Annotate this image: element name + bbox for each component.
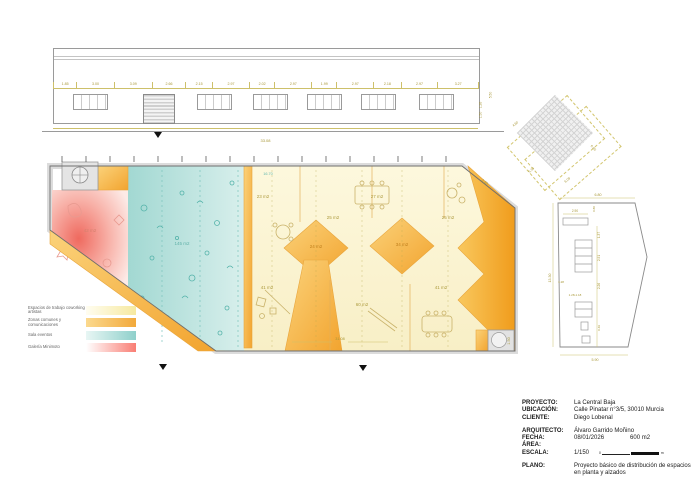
dimension-label: 13.30: [548, 274, 552, 283]
room-label: 24 m2: [310, 244, 323, 249]
side-elevation-drawing: 6.80 13.30 5.90 2.90 0.80 1.37 2.91 2.26…: [545, 190, 655, 370]
legend-label: Zonas comunes y comunicaciones: [28, 318, 86, 327]
parapet-line: [54, 56, 479, 57]
scale-value: 1/150: [574, 450, 589, 457]
dim-segment: 2.15: [185, 82, 212, 88]
dim-segment: 2.97: [336, 82, 373, 88]
dim-segment: 2.97: [274, 82, 311, 88]
dim-segment: 1.85: [53, 82, 76, 88]
dimension-label: 2.26: [597, 283, 601, 289]
legend-item: Sala eventos: [28, 329, 158, 342]
room-label: 42 m2: [84, 228, 97, 233]
roller-door: [143, 94, 175, 124]
title-block: PROYECTO: La Central Baja UBICACIÓN: Cal…: [522, 400, 698, 477]
vertical-dimension: 1.26: [478, 102, 482, 109]
roof-plan-drawing: 4.60 5.33 6.09 6.80: [506, 92, 618, 192]
date-value: 08/01/2026 600 m2: [574, 435, 698, 442]
room-label: 60 m2: [356, 302, 369, 307]
vertical-dimension: 5.50: [488, 92, 492, 99]
titleblock-row-area: ÁREA:: [522, 442, 698, 449]
overall-dimension: 33.08: [53, 128, 478, 147]
front-elevation-drawing: 1.85 3.00 3.09 2.66 2.15 2.97 2.02 2.97 …: [40, 45, 510, 145]
legend-item: Espacios de trabajo coworking artistas: [28, 304, 158, 317]
facade-window: [253, 94, 288, 110]
project-address: Calle Pinatar n°3/5, 30010 Murcia: [574, 407, 698, 414]
project-name: La Central Baja: [574, 400, 698, 407]
legend-label: Espacios de trabajo coworking artistas: [28, 306, 86, 315]
facade-window: [197, 94, 232, 110]
dim-segment: 2.97: [212, 82, 249, 88]
legend: Espacios de trabajo coworking artistas Z…: [28, 304, 158, 354]
section-marker: [154, 132, 162, 138]
dimension-label: 1.37: [597, 232, 601, 238]
dim-segment: 3.00: [76, 82, 113, 88]
dimension-label: 5.90: [592, 358, 599, 362]
field-label: ARQUITECTO:: [522, 428, 574, 435]
field-label: ÁREA:: [522, 442, 574, 449]
scale-bar-filled: [631, 452, 659, 455]
legend-swatch-gallery: [86, 343, 136, 352]
field-label: UBICACIÓN:: [522, 407, 574, 414]
side-outline: [558, 203, 647, 347]
field-label: ESCALA:: [522, 450, 574, 457]
titleblock-row-fecha: FECHA: 08/01/2026 600 m2: [522, 435, 698, 442]
dimension-label: 0.80: [592, 206, 596, 212]
dim-segment: 2.18: [373, 82, 400, 88]
legend-swatch-events: [86, 331, 136, 340]
dimension-label: 1.28: [558, 280, 564, 284]
vertical-dimension: 1.50: [478, 112, 482, 119]
room-label: 41 m2: [261, 285, 274, 290]
dimension-label: 31.08: [335, 337, 345, 341]
dimension-label: 16.70: [263, 172, 273, 176]
dim-segment: 3.27: [437, 82, 478, 88]
dimension-label: 2.90: [572, 209, 578, 213]
room-label: 145 m2: [174, 241, 190, 246]
room-label: 27 m2: [371, 194, 384, 199]
room-label: 34 m2: [396, 242, 409, 247]
date-text: 08/01/2026: [574, 435, 604, 442]
graphic-scale-bar: 0 m: [599, 450, 664, 457]
titleblock-row-plano: PLANO: Proyecto básico de distribución d…: [522, 463, 698, 477]
titleblock-row-arquitecto: ARQUITECTO: Álvaro Garrido Moñino: [522, 428, 698, 435]
client-name: Diego Lobenal: [574, 415, 698, 422]
area-value: 600 m2: [630, 435, 650, 442]
room-label: 23 m2: [257, 194, 270, 199]
titleblock-row-ubicacion: UBICACIÓN: Calle Pinatar n°3/5, 30010 Mu…: [522, 407, 698, 414]
dimension-chain: 1.85 3.00 3.09 2.66 2.15 2.97 2.02 2.97 …: [53, 82, 479, 89]
dim-segment: 2.66: [152, 82, 185, 88]
parapet-line: [54, 59, 479, 60]
titleblock-row-cliente: CLIENTE: Diego Lobenal: [522, 415, 698, 422]
architect-name: Álvaro Garrido Moñino: [574, 428, 698, 435]
scale-bar-open: [602, 454, 630, 455]
legend-label: Galería Minimoto: [28, 345, 86, 350]
room-label: 25 m2: [442, 215, 455, 220]
legend-item: Galería Minimoto: [28, 342, 158, 355]
sheet: { "colors": { "dim_text": "#a89737", "am…: [0, 0, 700, 495]
titleblock-row-escala: ESCALA: 1/150 0 m: [522, 450, 698, 457]
dimension-label: 6.80: [595, 193, 602, 197]
facade-window: [419, 94, 454, 110]
facade-window: [361, 94, 396, 110]
field-label: PLANO:: [522, 463, 574, 477]
dim-segment: 3.09: [114, 82, 152, 88]
dim-segment: 1.99: [311, 82, 336, 88]
dimension-label: 1.50: [507, 337, 511, 344]
dim-segment: 2.02: [249, 82, 274, 88]
legend-label: Sala eventos: [28, 333, 86, 338]
dim-segment: 2.97: [401, 82, 438, 88]
top-ticks: [62, 156, 446, 162]
dimension-label: 0.49: [597, 325, 601, 331]
field-label: CLIENTE:: [522, 415, 574, 422]
room-label: 25 m2: [327, 215, 340, 220]
dimension-label: 2.91: [597, 255, 601, 261]
legend-swatch-coworking: [86, 306, 136, 315]
facade-window: [307, 94, 342, 110]
scale-unit: m: [661, 450, 664, 457]
dimension-label: 1.28-1.18: [569, 293, 582, 297]
room-label: 41 m2: [435, 285, 448, 290]
legend-item: Zonas comunes y comunicaciones: [28, 317, 158, 330]
legend-swatch-circulation: [86, 318, 136, 327]
sheet-description: Proyecto básico de distribución de espac…: [574, 463, 698, 477]
dimension-label: 4.60: [511, 120, 519, 127]
facade-window: [73, 94, 108, 110]
section-markers: [159, 364, 367, 371]
scale-zero: 0: [599, 450, 601, 457]
